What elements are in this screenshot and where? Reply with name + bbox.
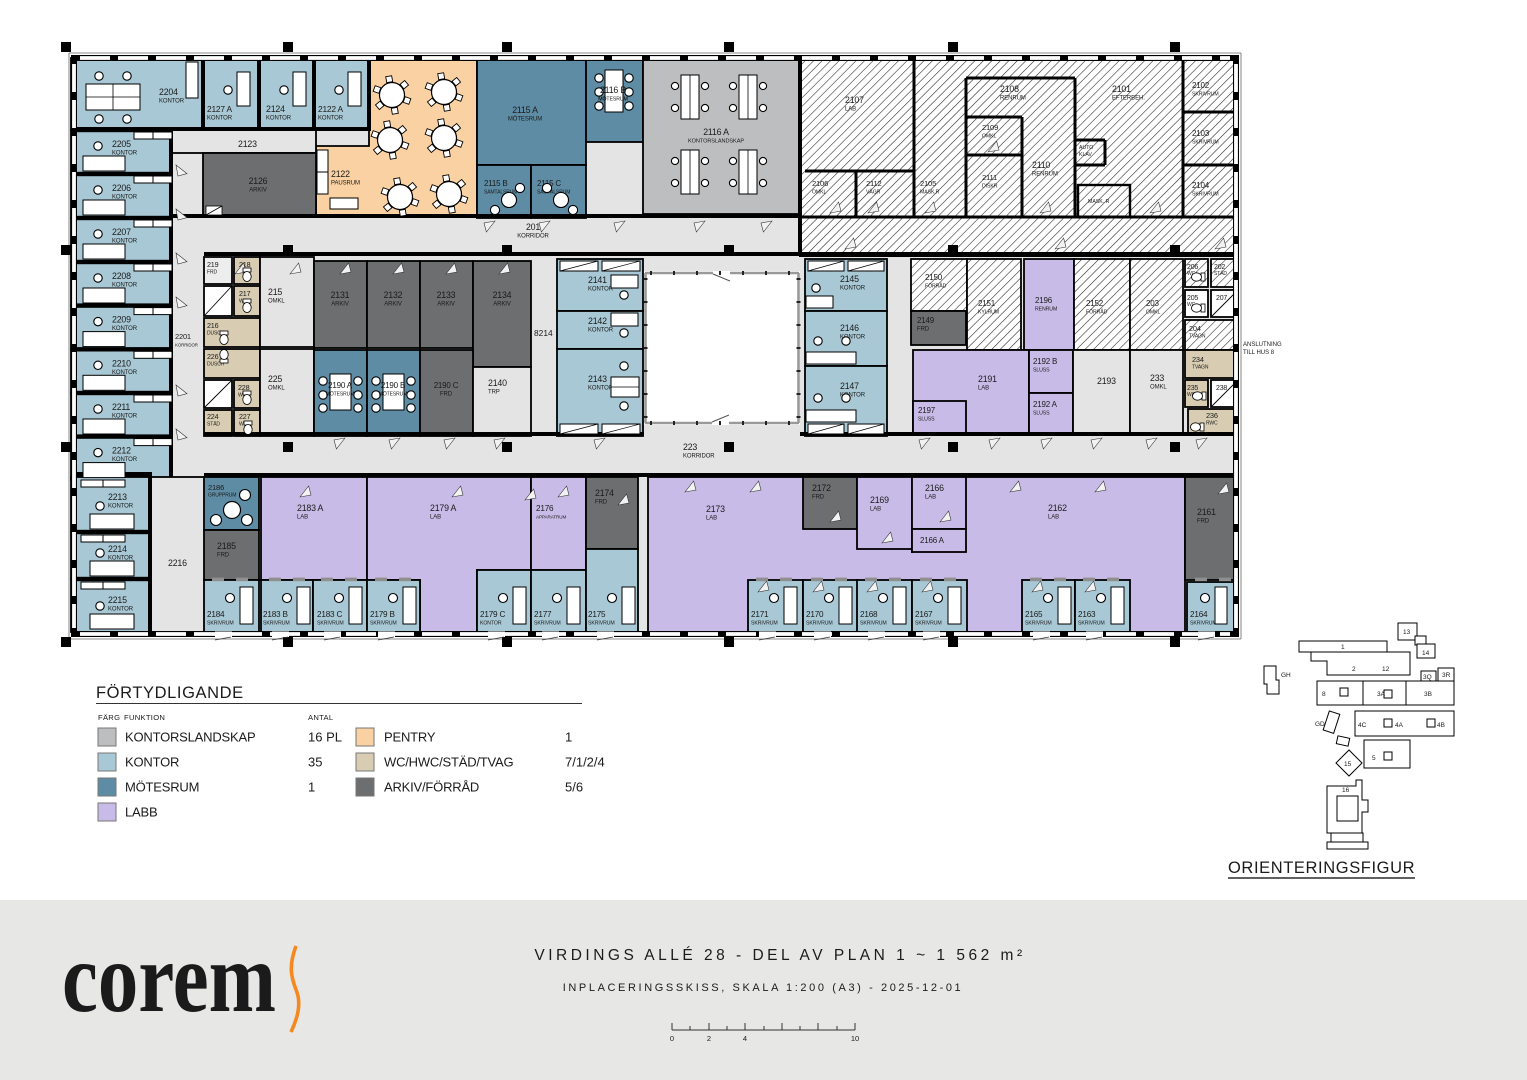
svg-text:LAB: LAB [1048, 515, 1059, 521]
svg-text:2150: 2150 [925, 273, 943, 282]
svg-text:2131: 2131 [331, 290, 350, 300]
svg-text:206: 206 [1187, 264, 1198, 271]
svg-text:SKRIVRUM: SKRIVRUM [370, 621, 397, 627]
svg-text:FRD: FRD [812, 495, 825, 501]
svg-text:4A: 4A [1395, 722, 1404, 729]
svg-text:2177: 2177 [534, 610, 552, 619]
svg-text:2143: 2143 [588, 374, 607, 384]
svg-text:LAB: LAB [297, 515, 308, 521]
svg-text:2183 B: 2183 B [263, 610, 288, 619]
svg-text:2162: 2162 [1048, 503, 1067, 513]
svg-text:corem: corem [62, 922, 276, 1033]
svg-text:238: 238 [1216, 385, 1227, 392]
svg-text:35: 35 [308, 755, 322, 770]
svg-text:2165: 2165 [1025, 610, 1043, 619]
svg-text:2101: 2101 [1112, 84, 1131, 94]
svg-text:4: 4 [743, 1034, 747, 1043]
svg-text:SKRIVRUM: SKRIVRUM [751, 621, 778, 627]
svg-text:2107: 2107 [845, 95, 864, 105]
svg-text:LAB: LAB [925, 495, 936, 501]
svg-text:2164: 2164 [1190, 610, 1208, 619]
svg-text:2146: 2146 [840, 323, 859, 333]
svg-text:OMKL: OMKL [812, 190, 827, 196]
svg-text:2214: 2214 [108, 544, 127, 554]
svg-text:LAB: LAB [870, 507, 881, 513]
svg-text:FÖRRÅD: FÖRRÅD [1086, 309, 1108, 316]
svg-text:KONTOR: KONTOR [125, 755, 179, 770]
svg-text:2190 C: 2190 C [434, 381, 459, 390]
svg-text:2183 C: 2183 C [317, 610, 342, 619]
svg-text:ARKIV: ARKIV [437, 302, 455, 308]
svg-text:2163: 2163 [1078, 610, 1096, 619]
svg-text:DISKR: DISKR [982, 184, 998, 190]
svg-text:FRD: FRD [440, 392, 453, 398]
svg-text:KORRIDOR: KORRIDOR [517, 234, 549, 240]
svg-text:FRD: FRD [207, 269, 217, 275]
svg-text:SKRIVRUM: SKRIVRUM [915, 621, 942, 627]
svg-text:SLUSS: SLUSS [918, 417, 935, 423]
svg-text:2167: 2167 [915, 610, 933, 619]
svg-text:SKRIVRUM: SKRIVRUM [1192, 192, 1219, 198]
svg-text:205: 205 [1187, 295, 1198, 302]
svg-text:5/6: 5/6 [565, 780, 583, 795]
svg-text:224: 224 [207, 412, 219, 421]
svg-text:16: 16 [1342, 787, 1350, 794]
svg-text:ARKIV/FÖRRÅD: ARKIV/FÖRRÅD [384, 780, 479, 795]
svg-text:SLUSS: SLUSS [1033, 411, 1050, 417]
svg-text:LABB: LABB [125, 805, 157, 820]
svg-text:2110: 2110 [1032, 160, 1050, 170]
svg-text:MÖTESRUM: MÖTESRUM [508, 116, 542, 123]
svg-text:2185: 2185 [217, 541, 236, 551]
svg-text:SKRIVRUM: SKRIVRUM [1190, 621, 1217, 627]
svg-text:2183 A: 2183 A [297, 503, 324, 513]
svg-text:STÄD: STÄD [1214, 270, 1227, 277]
svg-text:MÖTESRUM: MÖTESRUM [598, 96, 627, 103]
svg-text:KORRIDOR: KORRIDOR [683, 454, 715, 460]
svg-text:LAB: LAB [430, 515, 441, 521]
svg-text:ARKIV: ARKIV [493, 302, 511, 308]
svg-text:MASK. R: MASK. R [1088, 199, 1110, 205]
svg-text:225: 225 [268, 374, 282, 384]
svg-text:2179 B: 2179 B [370, 610, 395, 619]
svg-text:201: 201 [526, 222, 540, 232]
svg-text:226: 226 [207, 352, 219, 361]
svg-text:2173: 2173 [706, 504, 725, 514]
svg-text:2207: 2207 [112, 227, 131, 237]
svg-text:2141: 2141 [588, 275, 607, 285]
svg-text:15: 15 [1344, 761, 1352, 768]
svg-text:2190 A: 2190 A [328, 381, 353, 390]
svg-text:2175: 2175 [588, 610, 606, 619]
svg-text:RENRUM: RENRUM [1000, 96, 1026, 102]
svg-text:2106: 2106 [812, 179, 828, 188]
svg-text:FUNKTION: FUNKTION [124, 713, 165, 722]
svg-text:KONTOR: KONTOR [840, 286, 866, 292]
svg-text:2170: 2170 [806, 610, 824, 619]
svg-text:SKRIVRUM: SKRIVRUM [806, 621, 833, 627]
svg-text:2201: 2201 [175, 332, 191, 341]
svg-text:KONTOR: KONTOR [108, 504, 134, 510]
svg-text:PENTRY: PENTRY [384, 730, 436, 745]
svg-text:2116 B: 2116 B [600, 85, 626, 95]
svg-text:2204: 2204 [159, 87, 178, 97]
svg-text:2122 A: 2122 A [318, 104, 343, 114]
svg-text:3A: 3A [1377, 691, 1386, 698]
svg-text:SLUSS: SLUSS [1033, 368, 1050, 374]
svg-text:SKRIVRUM: SKRIVRUM [860, 621, 887, 627]
svg-text:2122: 2122 [331, 169, 350, 179]
svg-text:VIRDINGS ALLÉ 28 - DEL AV PLAN: VIRDINGS ALLÉ 28 - DEL AV PLAN 1 ~ 1 562… [534, 947, 1025, 964]
svg-text:RENRUM: RENRUM [1035, 307, 1057, 313]
svg-text:2152: 2152 [1086, 299, 1104, 308]
svg-text:FRD: FRD [917, 327, 930, 333]
svg-text:204: 204 [1189, 324, 1201, 333]
svg-text:2134: 2134 [493, 290, 512, 300]
svg-text:SKRIVRUM: SKRIVRUM [588, 621, 615, 627]
svg-text:2212: 2212 [112, 446, 131, 456]
svg-text:KONTOR: KONTOR [588, 287, 614, 293]
svg-text:FÖRRÅD: FÖRRÅD [925, 283, 947, 290]
svg-text:2116 A: 2116 A [703, 127, 729, 137]
svg-text:2179 C: 2179 C [480, 610, 505, 619]
svg-text:2123: 2123 [238, 139, 257, 149]
svg-text:2149: 2149 [917, 316, 935, 325]
svg-text:227: 227 [239, 412, 251, 421]
svg-text:FRD: FRD [1197, 519, 1210, 525]
svg-text:LAB: LAB [845, 107, 856, 113]
svg-text:OMKL: OMKL [1150, 385, 1167, 391]
svg-text:ARKIV: ARKIV [384, 302, 402, 308]
svg-text:MÖTESRUM: MÖTESRUM [326, 391, 354, 398]
svg-text:2190 B: 2190 B [381, 381, 405, 390]
svg-text:EFTERBEH.: EFTERBEH. [1112, 96, 1145, 102]
svg-text:ORIENTERINGSFIGUR: ORIENTERINGSFIGUR [1228, 859, 1415, 877]
svg-text:SKRIVRUM: SKRIVRUM [534, 621, 561, 627]
svg-text:2104: 2104 [1192, 181, 1210, 190]
svg-text:2216: 2216 [168, 558, 187, 568]
svg-text:2206: 2206 [112, 183, 131, 193]
svg-text:2186: 2186 [208, 483, 224, 492]
svg-text:GD: GD [1315, 721, 1325, 728]
svg-text:217: 217 [239, 289, 251, 298]
svg-text:2142: 2142 [588, 316, 607, 326]
svg-text:2166: 2166 [925, 483, 944, 493]
svg-text:2147: 2147 [840, 381, 859, 391]
svg-text:KONTORSLANDSKAP: KONTORSLANDSKAP [125, 730, 255, 745]
svg-text:2103: 2103 [1192, 129, 1210, 138]
svg-text:KONTOR: KONTOR [159, 99, 185, 105]
svg-text:16 PL: 16 PL [308, 730, 342, 745]
svg-text:KONTOR: KONTOR [588, 328, 614, 334]
svg-text:2193: 2193 [1097, 376, 1116, 386]
svg-text:VÅGR: VÅGR [866, 189, 881, 196]
svg-text:2112: 2112 [866, 179, 882, 188]
svg-text:KYLRUM: KYLRUM [978, 310, 999, 316]
svg-text:FÖRTYDLIGANDE: FÖRTYDLIGANDE [96, 684, 244, 702]
svg-text:2140: 2140 [488, 378, 507, 388]
svg-text:SKRIVRUM: SKRIVRUM [317, 621, 344, 627]
svg-text:KONTOR: KONTOR [588, 386, 614, 392]
svg-text:5: 5 [1372, 755, 1376, 762]
svg-text:MÖTESRUM: MÖTESRUM [379, 391, 407, 398]
svg-text:AUTO: AUTO [1079, 145, 1093, 151]
svg-text:GH: GH [1281, 672, 1291, 679]
svg-text:KONTORSLANDSKAP: KONTORSLANDSKAP [688, 139, 744, 145]
svg-text:4C: 4C [1358, 722, 1367, 729]
svg-text:KONTOR: KONTOR [108, 607, 134, 613]
svg-text:1: 1 [308, 780, 315, 795]
svg-text:SKRIVRUM: SKRIVRUM [1078, 621, 1105, 627]
svg-text:2102: 2102 [1192, 81, 1210, 90]
svg-text:ANSLUTNING: ANSLUTNING [1243, 342, 1282, 348]
svg-text:TVAGN: TVAGN [1189, 333, 1206, 339]
svg-text:INPLACERINGSSKISS, SKALA 1:200: INPLACERINGSSKISS, SKALA 1:200 (A3) - 20… [563, 982, 964, 994]
svg-text:2213: 2213 [108, 492, 127, 502]
svg-text:234: 234 [1192, 355, 1204, 364]
svg-text:2161: 2161 [1197, 507, 1216, 517]
svg-text:0: 0 [670, 1034, 674, 1043]
svg-text:2: 2 [1352, 666, 1356, 673]
svg-text:215: 215 [268, 287, 282, 297]
svg-text:2191: 2191 [978, 374, 997, 384]
svg-text:2109: 2109 [982, 123, 998, 132]
svg-text:4B: 4B [1437, 722, 1445, 729]
svg-text:2210: 2210 [112, 358, 131, 368]
svg-text:233: 233 [1150, 373, 1164, 383]
svg-text:14: 14 [1422, 650, 1430, 657]
svg-text:FRD: FRD [595, 500, 608, 506]
svg-text:2: 2 [707, 1034, 711, 1043]
svg-text:OMKL: OMKL [982, 134, 997, 140]
svg-text:203: 203 [1146, 299, 1159, 308]
svg-text:2171: 2171 [751, 610, 769, 619]
svg-text:KLAV: KLAV [1079, 152, 1092, 158]
svg-text:KONTOR: KONTOR [266, 116, 292, 122]
svg-text:2111: 2111 [982, 173, 997, 182]
svg-text:SKRIVRUM: SKRIVRUM [207, 621, 234, 627]
svg-text:2197: 2197 [918, 406, 936, 415]
svg-text:2168: 2168 [860, 610, 878, 619]
svg-text:202: 202 [1214, 264, 1225, 271]
svg-text:STÄD: STÄD [207, 420, 220, 427]
svg-text:3Q: 3Q [1423, 674, 1432, 681]
svg-text:2133: 2133 [437, 290, 456, 300]
svg-text:2124: 2124 [266, 104, 285, 114]
svg-text:LAB: LAB [706, 516, 717, 522]
svg-text:10: 10 [851, 1034, 859, 1043]
svg-text:1: 1 [565, 730, 572, 745]
svg-text:KONTOR: KONTOR [207, 116, 233, 122]
svg-text:ANTAL: ANTAL [308, 713, 333, 722]
svg-text:2126: 2126 [249, 176, 268, 186]
svg-text:WC/HWC/STÄD/TVAG: WC/HWC/STÄD/TVAG [384, 755, 514, 770]
svg-text:219: 219 [207, 260, 219, 269]
svg-text:SKRIVRUM: SKRIVRUM [1192, 92, 1219, 98]
svg-text:2172: 2172 [812, 483, 831, 493]
svg-text:235: 235 [1187, 385, 1198, 392]
svg-text:ARKIV: ARKIV [331, 302, 349, 308]
svg-text:KONTOR: KONTOR [480, 621, 502, 627]
svg-text:223: 223 [683, 442, 697, 452]
svg-text:OMKL: OMKL [268, 386, 285, 392]
svg-text:2205: 2205 [112, 139, 131, 149]
svg-text:8214: 8214 [534, 328, 553, 338]
svg-text:2196: 2196 [1035, 296, 1053, 305]
svg-text:TRP: TRP [488, 390, 500, 396]
svg-text:1: 1 [1341, 644, 1345, 651]
svg-text:2115 B: 2115 B [484, 179, 508, 188]
svg-text:12: 12 [1382, 666, 1390, 673]
svg-text:MASK.R: MASK.R [920, 190, 940, 196]
svg-text:SKRIVRUM: SKRIVRUM [263, 621, 290, 627]
svg-text:3B: 3B [1424, 691, 1432, 698]
svg-text:2192 B: 2192 B [1033, 357, 1057, 366]
svg-text:GRUPPRUM: GRUPPRUM [208, 493, 236, 499]
svg-text:APPARATRUM: APPARATRUM [536, 515, 566, 520]
svg-text:2108: 2108 [1000, 84, 1019, 94]
svg-text:2211: 2211 [112, 402, 130, 412]
svg-text:2127 A: 2127 A [207, 104, 232, 114]
svg-text:236: 236 [1206, 411, 1218, 420]
svg-text:8: 8 [1322, 691, 1326, 698]
svg-text:2184: 2184 [207, 610, 225, 619]
svg-text:KORRIDOR: KORRIDOR [175, 343, 198, 348]
svg-text:ARKIV: ARKIV [249, 188, 267, 194]
svg-text:2215: 2215 [108, 595, 127, 605]
svg-text:13: 13 [1403, 629, 1411, 636]
svg-text:RWC: RWC [1206, 420, 1218, 426]
svg-text:SKRIVRUM: SKRIVRUM [1025, 621, 1052, 627]
svg-text:OMKL: OMKL [268, 299, 285, 305]
svg-text:FÄRG: FÄRG [98, 713, 120, 722]
svg-text:TVAGN: TVAGN [1192, 364, 1209, 370]
svg-text:2179 A: 2179 A [430, 503, 457, 513]
svg-text:2145: 2145 [840, 274, 859, 284]
svg-text:FRD: FRD [217, 553, 230, 559]
svg-text:2174: 2174 [595, 488, 614, 498]
svg-text:207: 207 [1216, 295, 1227, 302]
svg-text:2169: 2169 [870, 495, 889, 505]
svg-text:7/1/2/4: 7/1/2/4 [565, 755, 605, 770]
svg-text:2192 A: 2192 A [1033, 400, 1058, 409]
svg-text:TILL HUS 8: TILL HUS 8 [1243, 350, 1275, 356]
svg-text:2151: 2151 [978, 299, 996, 308]
svg-text:2166 A: 2166 A [920, 536, 945, 545]
svg-text:LAB: LAB [978, 386, 989, 392]
svg-text:KONTOR: KONTOR [318, 116, 344, 122]
svg-text:2209: 2209 [112, 315, 131, 325]
svg-text:2208: 2208 [112, 271, 131, 281]
svg-text:2132: 2132 [384, 290, 403, 300]
svg-text:MÖTESRUM: MÖTESRUM [125, 780, 199, 795]
svg-text:RENRUM: RENRUM [1032, 172, 1058, 178]
svg-text:2115 A: 2115 A [512, 105, 538, 115]
svg-text:216: 216 [207, 321, 219, 330]
svg-text:2176: 2176 [536, 504, 554, 513]
svg-text:3R: 3R [1442, 672, 1451, 679]
svg-text:2105: 2105 [920, 179, 936, 188]
svg-text:SKRIVRUM: SKRIVRUM [1192, 140, 1219, 146]
svg-text:OMKL: OMKL [1146, 310, 1161, 316]
svg-text:PAUSRUM: PAUSRUM [331, 181, 360, 187]
